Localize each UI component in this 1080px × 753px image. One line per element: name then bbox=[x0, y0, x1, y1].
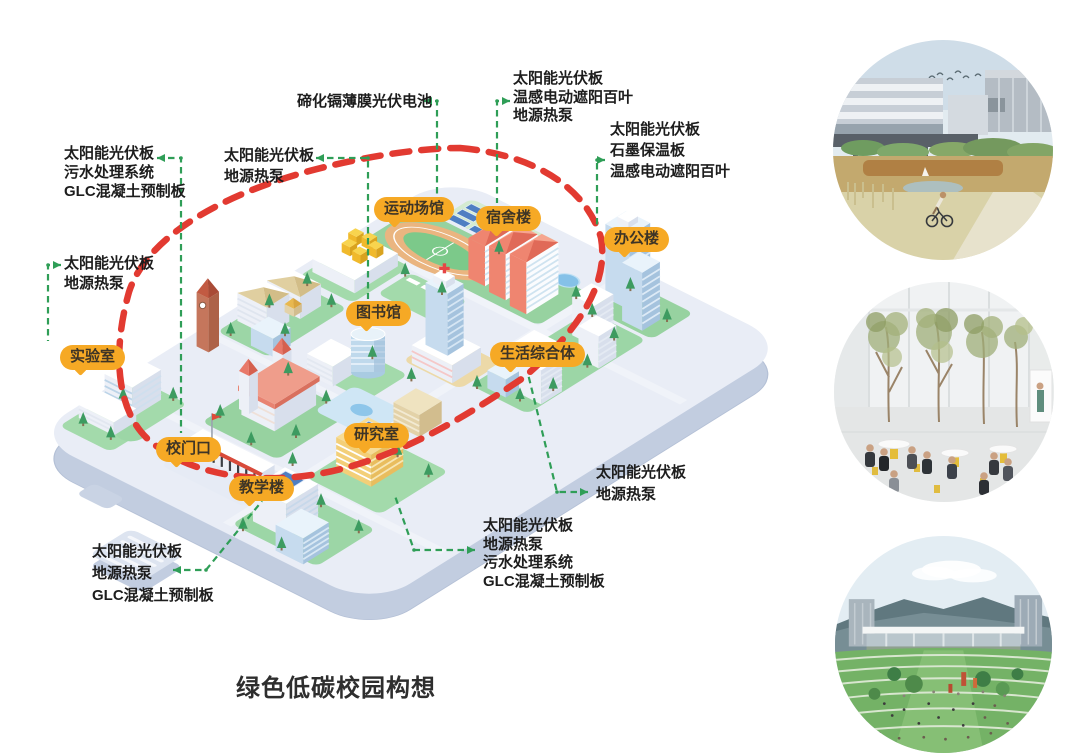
annotation-line: 太阳能光伏板 bbox=[64, 144, 186, 163]
photo-atrium-dining-trees bbox=[834, 282, 1054, 502]
building-label-teaching: 教学楼 bbox=[229, 476, 294, 501]
annotation-line: 碲化镉薄膜光伏电池 bbox=[297, 92, 432, 112]
annotation-top-center: 碲化镉薄膜光伏电池 bbox=[297, 92, 432, 112]
building-label-life-complex: 生活综合体 bbox=[490, 342, 585, 367]
annotation-line: 污水处理系统 bbox=[64, 163, 186, 182]
annotation-line: 太阳能光伏板 bbox=[596, 462, 686, 484]
annotation-line: 地源热泵 bbox=[224, 166, 314, 187]
building-label-library: 图书馆 bbox=[346, 301, 411, 326]
annotation-line: 太阳能光伏板 bbox=[92, 541, 214, 563]
green-campus-poster: 运动场馆 宿舍楼 办公楼 图书馆 生活综合体 实验室 校门口 教学楼 研究室 碲… bbox=[0, 0, 1080, 753]
annotation-line: 太阳能光伏板 bbox=[513, 70, 633, 89]
annotation-line: 石墨保温板 bbox=[610, 140, 730, 161]
building-label-research: 研究室 bbox=[344, 423, 409, 448]
photo-circle-campus-wetland bbox=[833, 40, 1053, 260]
annotation-line: 地源热泵 bbox=[64, 274, 154, 294]
caption-title: 绿色低碳校园构想 bbox=[236, 668, 436, 703]
annotation-line: 太阳能光伏板 bbox=[64, 254, 154, 274]
annotation-top-right: 太阳能光伏板 温感电动遮阳百叶 地源热泵 bbox=[513, 70, 633, 126]
annotation-right-upper: 太阳能光伏板 石墨保温板 温感电动遮阳百叶 bbox=[610, 119, 730, 182]
annotation-line: 太阳能光伏板 bbox=[483, 517, 605, 536]
photo-campus-wetland-cyclist bbox=[833, 40, 1053, 260]
building-label-school-gate: 校门口 bbox=[156, 437, 221, 462]
annotation-line: 太阳能光伏板 bbox=[610, 119, 730, 140]
annotation-line: 温感电动遮阳百叶 bbox=[610, 161, 730, 182]
building-label-sports-hall: 运动场馆 bbox=[374, 197, 454, 222]
annotation-line: 地源热泵 bbox=[483, 536, 605, 555]
building-label-dormitory: 宿舍楼 bbox=[476, 206, 541, 231]
annotation-line: 地源热泵 bbox=[92, 563, 214, 585]
annotation-left-upper: 太阳能光伏板 污水处理系统 GLC混凝土预制板 bbox=[64, 144, 186, 201]
building-label-office: 办公楼 bbox=[604, 227, 669, 252]
annotation-mid-right: 太阳能光伏板 地源热泵 bbox=[596, 462, 686, 506]
annotation-line: 温感电动遮阳百叶 bbox=[513, 89, 633, 108]
annotation-line: GLC混凝土预制板 bbox=[92, 585, 214, 607]
building-label-laboratory: 实验室 bbox=[60, 345, 125, 370]
annotation-bottom-left: 太阳能光伏板 地源热泵 GLC混凝土预制板 bbox=[92, 541, 214, 607]
annotation-line: GLC混凝土预制板 bbox=[483, 573, 605, 592]
annotation-mid-upper: 太阳能光伏板 地源热泵 bbox=[224, 145, 314, 187]
annotation-line: 太阳能光伏板 bbox=[224, 145, 314, 166]
photo-terraced-lawn-park bbox=[835, 536, 1052, 753]
annotation-left-mid: 太阳能光伏板 地源热泵 bbox=[64, 254, 154, 294]
photo-circle-terraced-park bbox=[835, 536, 1052, 753]
annotation-line: 污水处理系统 bbox=[483, 554, 605, 573]
annotation-line: GLC混凝土预制板 bbox=[64, 182, 186, 201]
photo-circle-atrium bbox=[834, 282, 1054, 502]
annotation-bottom-center: 太阳能光伏板 地源热泵 污水处理系统 GLC混凝土预制板 bbox=[483, 517, 605, 591]
annotation-line: 地源热泵 bbox=[596, 484, 686, 506]
